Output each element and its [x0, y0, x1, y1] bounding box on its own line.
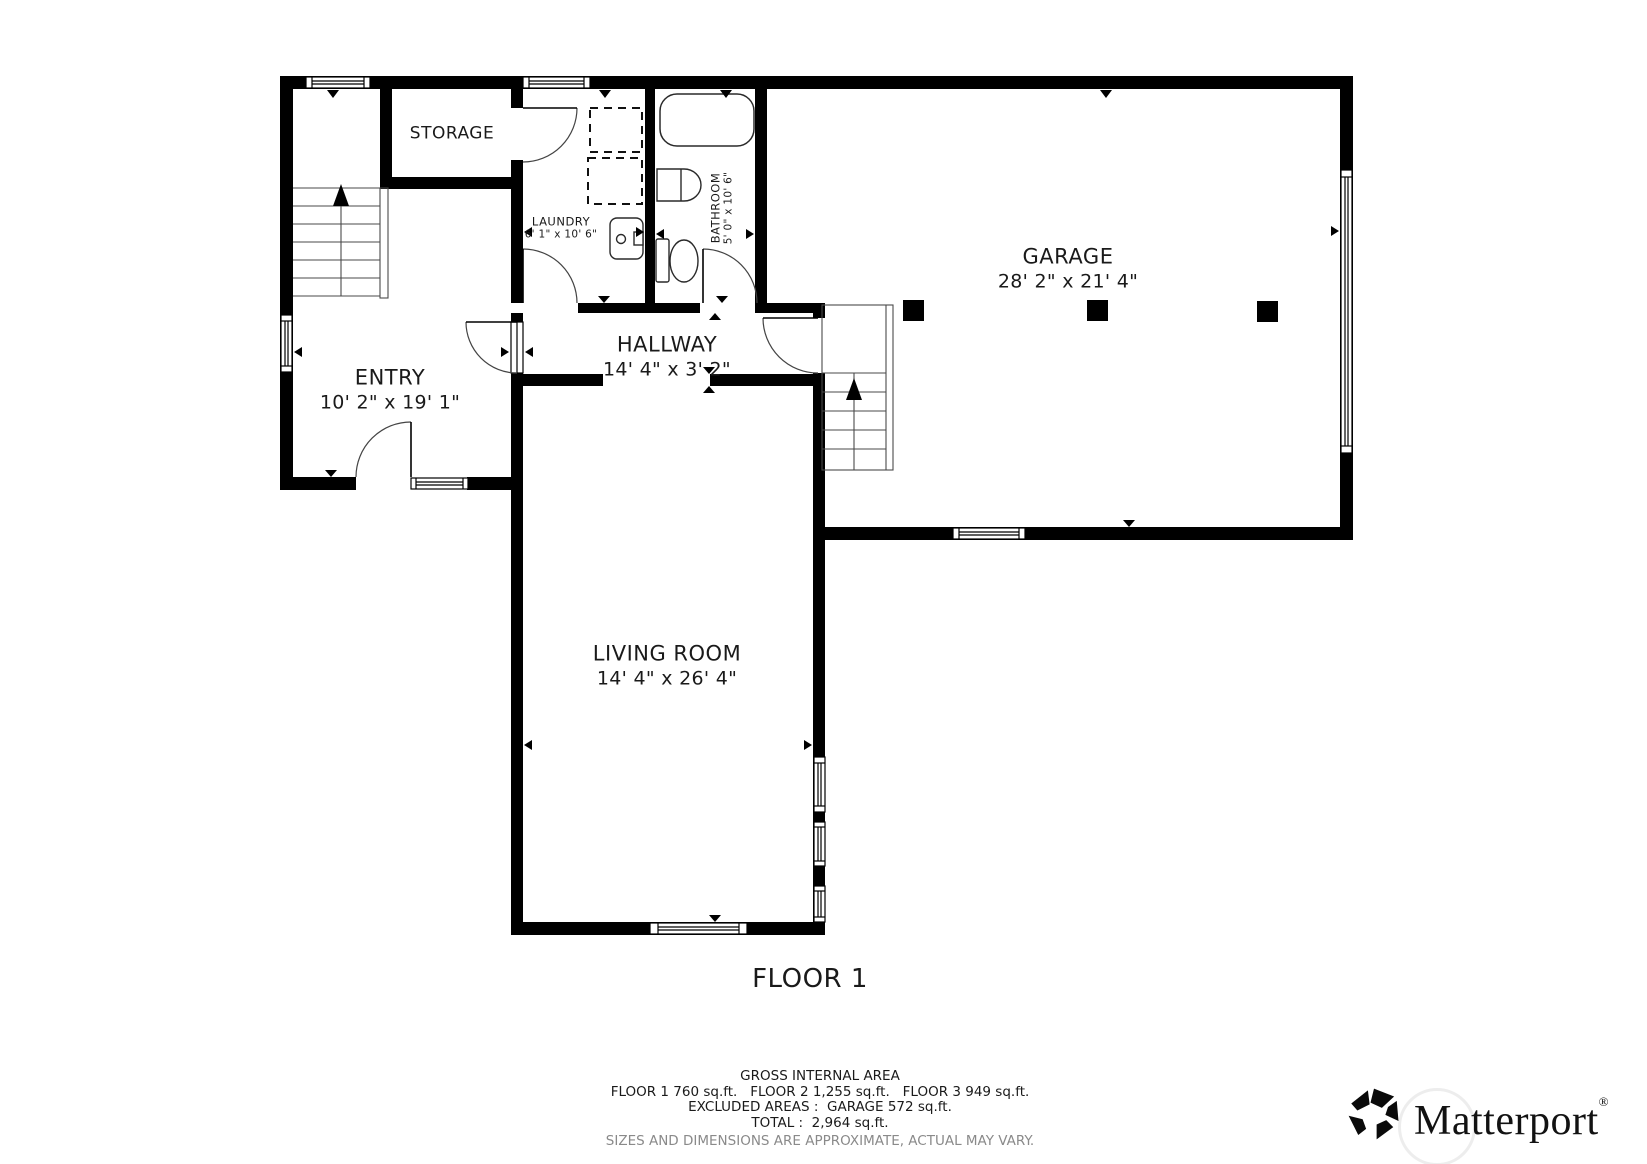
room-dimensions: 14' 4" x 26' 4": [593, 667, 741, 690]
door-laundry-hallway: [523, 249, 577, 303]
room-name: HALLWAY: [603, 333, 731, 359]
window: [306, 77, 370, 88]
room-dimensions: 28' 2" x 21' 4": [998, 270, 1138, 293]
room-dimensions: 5' 0" x 10' 6": [723, 172, 736, 245]
bathtub: [660, 94, 754, 146]
room-label-bathroom: BATHROOM 5' 0" x 10' 6": [709, 172, 736, 245]
doors: [356, 108, 818, 477]
floor-plan-page: STORAGE LAUNDRY 6' 1" x 10' 6" BATHROOM …: [0, 0, 1647, 1164]
room-name: ENTRY: [320, 366, 460, 392]
window: [814, 822, 825, 866]
stairs-up-arrow: [846, 378, 862, 400]
area-summary-disclaimer: SIZES AND DIMENSIONS ARE APPROXIMATE, AC…: [606, 1133, 1034, 1149]
garage-staircase: [822, 305, 893, 470]
toilet: [656, 239, 698, 282]
laundry-sink: [610, 218, 643, 259]
room-dimensions: 10' 2" x 19' 1": [320, 391, 460, 414]
garage-pillar: [903, 300, 924, 321]
room-name: LAUNDRY: [525, 215, 598, 229]
room-label-laundry: LAUNDRY 6' 1" x 10' 6": [525, 215, 598, 242]
room-name: BATHROOM: [709, 172, 723, 245]
window: [1341, 170, 1352, 453]
door-threshold: [511, 322, 523, 373]
door-entry-hallway: [466, 322, 517, 373]
garage-pillars: [903, 300, 1278, 322]
room-label-living-room: LIVING ROOM 14' 4" x 26' 4": [593, 642, 741, 691]
room-label-garage: GARAGE 28' 2" x 21' 4": [998, 245, 1138, 294]
dryer: [588, 158, 642, 204]
matterport-logo-icon: [1346, 1086, 1402, 1142]
area-summary-excluded: EXCLUDED AREAS : GARAGE 572 sq.ft.: [688, 1099, 952, 1115]
area-summary-heading: GROSS INTERNAL AREA: [740, 1068, 900, 1084]
door-storage-laundry: [523, 108, 577, 162]
window: [281, 315, 292, 372]
room-name: STORAGE: [410, 124, 494, 145]
garage-pillar: [1087, 300, 1108, 321]
window: [814, 886, 825, 922]
room-dimensions: 14' 4" x 3' 2": [603, 358, 731, 381]
bathroom-sink: [657, 169, 701, 201]
registered-trademark-symbol: ®: [1599, 1094, 1609, 1109]
area-summary-floors: FLOOR 1 760 sq.ft. FLOOR 2 1,255 sq.ft. …: [611, 1084, 1030, 1100]
floor-title: FLOOR 1: [752, 964, 868, 994]
entry-staircase: [293, 184, 388, 298]
window: [953, 528, 1025, 539]
room-label-hallway: HALLWAY 14' 4" x 3' 2": [603, 333, 731, 382]
fixtures: [588, 94, 1278, 322]
area-summary-total: TOTAL : 2,964 sq.ft.: [751, 1115, 888, 1131]
garage-pillar: [1257, 301, 1278, 322]
window: [650, 923, 747, 934]
door-front-entry: [356, 422, 411, 477]
window: [814, 757, 825, 812]
door-bathroom-hallway: [703, 249, 757, 303]
room-name: GARAGE: [998, 245, 1138, 271]
stairs-up-arrow: [333, 184, 349, 206]
brand-name: Matterport: [1414, 1098, 1599, 1144]
window: [523, 77, 590, 88]
window: [411, 478, 468, 489]
room-name: LIVING ROOM: [593, 642, 741, 668]
washer: [590, 108, 642, 152]
door-hallway-garage: [763, 318, 818, 373]
room-dimensions: 6' 1" x 10' 6": [525, 229, 598, 242]
matterport-wordmark: Matterport®: [1414, 1094, 1609, 1145]
room-label-storage: STORAGE: [410, 124, 494, 145]
room-label-entry: ENTRY 10' 2" x 19' 1": [320, 366, 460, 415]
